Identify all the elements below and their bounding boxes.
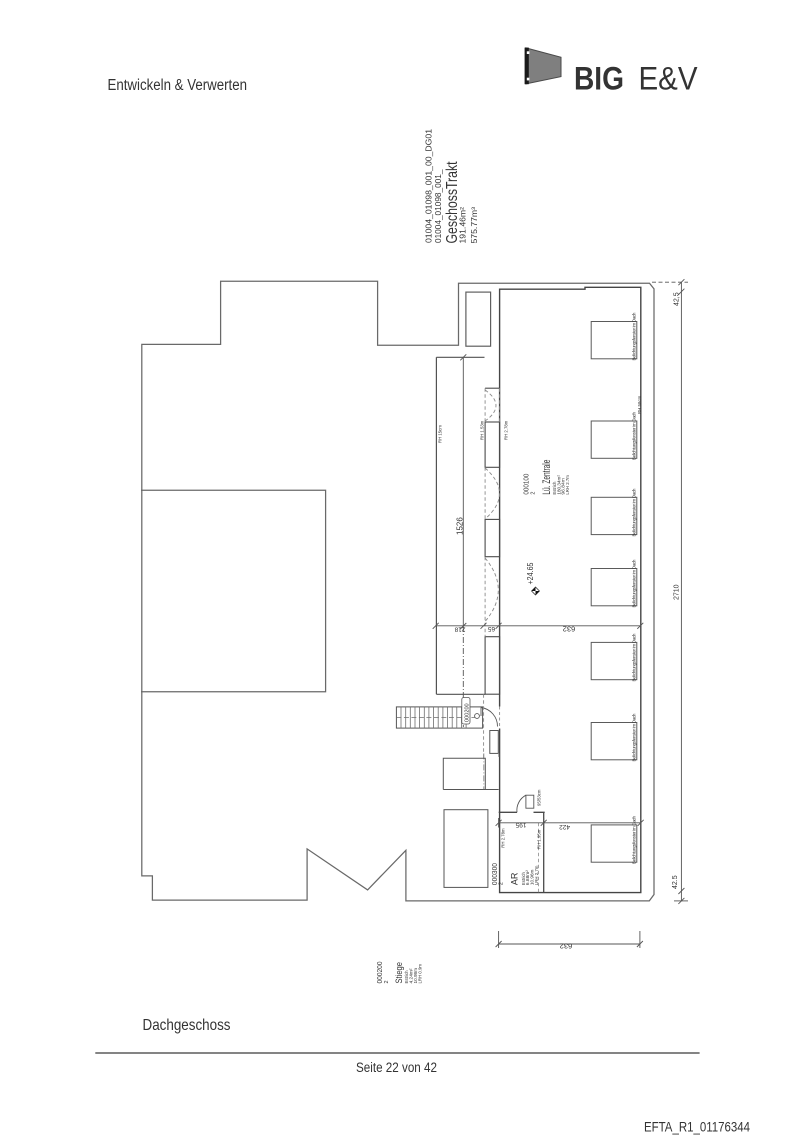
svg-text:Seite 22 von 42: Seite 22 von 42	[356, 1060, 437, 1075]
svg-text:Belichtungsfenster im Dach: Belichtungsfenster im Dach	[632, 633, 637, 682]
svg-text:218: 218	[454, 626, 465, 633]
svg-text:LRH 0.9m: LRH 0.9m	[417, 964, 423, 984]
svg-text:01004_01098_001_: 01004_01098_001_	[434, 169, 443, 243]
svg-text:2: 2	[499, 882, 505, 885]
svg-text:+24.65: +24.65	[526, 562, 535, 584]
svg-text:Stiege: Stiege	[394, 962, 404, 984]
svg-text:000300: 000300	[492, 863, 499, 885]
svg-text:42,5: 42,5	[674, 292, 681, 306]
svg-text:Lü. Zentrale: Lü. Zentrale	[541, 460, 553, 495]
svg-text:2: 2	[384, 980, 390, 983]
svg-text:Entwickeln & Verwerten: Entwickeln & Verwerten	[108, 77, 248, 94]
svg-text:EFTA_R1_01176344: EFTA_R1_01176344	[644, 1120, 750, 1135]
svg-text:RH 1.95m: RH 1.95m	[536, 829, 541, 849]
svg-text:Belichtungsfenster im Dach: Belichtungsfenster im Dach	[632, 312, 637, 361]
svg-text:000100: 000100	[524, 474, 531, 495]
svg-text:000200: 000200	[464, 703, 470, 722]
svg-text:1526: 1526	[455, 517, 464, 535]
svg-text:95/53cm: 95/53cm	[537, 789, 542, 806]
svg-text:LRH 2.7m: LRH 2.7m	[565, 475, 571, 495]
svg-text:RH 2.78m: RH 2.78m	[500, 828, 505, 848]
svg-text:191.46m²: 191.46m²	[459, 207, 468, 244]
svg-text:Belichtungsfenster im Dach: Belichtungsfenster im Dach	[632, 411, 637, 460]
svg-text:E&V: E&V	[639, 61, 698, 97]
svg-text:65: 65	[488, 625, 496, 632]
svg-text:Belichtungsfenster im Dach: Belichtungsfenster im Dach	[632, 559, 637, 608]
svg-text:2710: 2710	[674, 584, 681, 600]
svg-text:575.77m³: 575.77m³	[470, 207, 479, 244]
svg-text:RH 15cm: RH 15cm	[438, 425, 443, 443]
svg-text:Belichtungsfenster im Dach: Belichtungsfenster im Dach	[632, 713, 637, 762]
svg-text:Dachgeschoss: Dachgeschoss	[143, 1017, 231, 1034]
svg-text:01004_01098_001_00_DG01: 01004_01098_001_00_DG01	[425, 129, 434, 243]
svg-text:42.5: 42.5	[672, 875, 679, 889]
svg-text:422: 422	[559, 823, 570, 830]
svg-text:BIG: BIG	[574, 61, 624, 97]
svg-text:2: 2	[531, 492, 537, 495]
svg-text:RH 1.53m: RH 1.53m	[480, 420, 485, 440]
svg-text:RH 58cm: RH 58cm	[637, 395, 642, 414]
svg-text:632: 632	[560, 942, 573, 951]
svg-text:000200: 000200	[377, 961, 384, 983]
svg-text:LRH 2.7m: LRH 2.7m	[534, 866, 540, 886]
svg-text:RH 2.78m: RH 2.78m	[504, 420, 509, 440]
svg-text:Belichtungsfenster im Dach: Belichtungsfenster im Dach	[632, 488, 637, 537]
svg-text:195: 195	[515, 821, 526, 828]
svg-text:AR: AR	[510, 872, 520, 885]
svg-text:632: 632	[563, 625, 576, 634]
